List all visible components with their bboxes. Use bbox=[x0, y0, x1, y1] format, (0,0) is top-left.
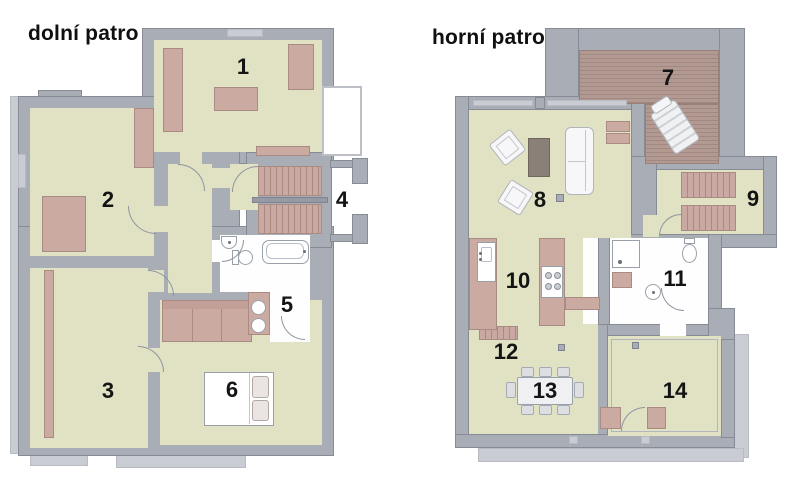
stove bbox=[541, 266, 563, 298]
sofa-cushion-divider bbox=[192, 309, 193, 341]
porch bbox=[116, 454, 246, 468]
shower-drain bbox=[618, 260, 622, 264]
wall-segment bbox=[631, 96, 645, 158]
bed-divider bbox=[249, 373, 250, 424]
sofa bbox=[565, 127, 594, 195]
bathtub-inner bbox=[266, 243, 304, 259]
shower bbox=[612, 240, 640, 268]
column bbox=[558, 344, 565, 351]
sideboard bbox=[606, 121, 630, 132]
wall-pillar bbox=[352, 214, 368, 244]
room-number: 14 bbox=[663, 378, 687, 404]
desk bbox=[42, 196, 86, 252]
room-number: 13 bbox=[533, 378, 557, 404]
room-number: 4 bbox=[336, 187, 348, 213]
corridor-floor bbox=[583, 238, 598, 324]
washbasin bbox=[645, 284, 661, 300]
room-number: 3 bbox=[102, 378, 114, 404]
plan-title-upper-floor: horní patro bbox=[432, 26, 545, 50]
dining-chair bbox=[521, 405, 534, 415]
wall-pillar bbox=[352, 158, 368, 184]
sink-basin bbox=[481, 247, 492, 262]
window bbox=[569, 436, 578, 444]
toilet bbox=[682, 244, 697, 263]
cabinet bbox=[600, 407, 621, 429]
pillow bbox=[252, 376, 269, 398]
staircase-lower-flight bbox=[681, 205, 736, 231]
sofa bbox=[162, 300, 252, 342]
door-opening bbox=[643, 215, 659, 237]
window-mullion bbox=[535, 97, 545, 109]
burner bbox=[545, 283, 552, 290]
sideboard bbox=[606, 133, 630, 144]
room-number: 7 bbox=[662, 65, 674, 91]
dining-chair bbox=[557, 405, 570, 415]
armchair-seat bbox=[504, 186, 527, 209]
wardrobe bbox=[134, 108, 154, 168]
bathtub bbox=[262, 240, 309, 264]
room-number: 10 bbox=[506, 268, 530, 294]
burner bbox=[554, 272, 561, 279]
room-number: 8 bbox=[534, 187, 546, 213]
window bbox=[227, 29, 263, 37]
room-number: 9 bbox=[747, 186, 759, 212]
wall-segment bbox=[598, 234, 610, 334]
sofa-backrest bbox=[163, 301, 251, 309]
dining-chair bbox=[574, 382, 584, 398]
porch bbox=[478, 448, 744, 462]
burner bbox=[554, 283, 561, 290]
washbasin bbox=[251, 300, 266, 315]
wardrobe bbox=[288, 44, 314, 90]
window bbox=[473, 100, 533, 106]
bathtub-drain bbox=[303, 250, 306, 253]
outer-shadow bbox=[733, 334, 749, 458]
window bbox=[18, 154, 26, 188]
cabinet-strip bbox=[44, 270, 54, 438]
dining-chair bbox=[506, 382, 516, 398]
wall-segment bbox=[455, 96, 469, 448]
wardrobe bbox=[163, 48, 183, 132]
dining-chair bbox=[557, 367, 570, 377]
terrace-deck bbox=[579, 50, 719, 104]
room-number: 12 bbox=[494, 339, 518, 365]
wall-segment bbox=[455, 434, 735, 448]
bath-cabinet bbox=[612, 272, 632, 288]
window bbox=[641, 436, 650, 444]
pillow bbox=[252, 400, 269, 421]
kitchen-sink-counter bbox=[477, 242, 496, 282]
wall-segment bbox=[719, 28, 745, 170]
dining-chair bbox=[521, 367, 534, 377]
faucet bbox=[479, 252, 482, 255]
basin-drain bbox=[652, 291, 655, 294]
balcony bbox=[322, 86, 362, 156]
armchair-seat bbox=[496, 136, 520, 160]
dining-chair bbox=[539, 367, 552, 377]
room-number: 1 bbox=[237, 54, 249, 80]
sofa-cushion-divider bbox=[221, 309, 222, 341]
plan-title-lower-floor: dolní patro bbox=[28, 22, 139, 46]
room-number: 11 bbox=[663, 266, 686, 292]
sofa-backrest-line bbox=[585, 130, 586, 191]
room-number: 6 bbox=[226, 377, 238, 403]
sofa-cushion-divider bbox=[568, 161, 585, 162]
shelf bbox=[256, 146, 310, 156]
staircase-lower-flight bbox=[258, 204, 322, 234]
room-number: 2 bbox=[102, 187, 114, 213]
staircase-upper-flight bbox=[258, 166, 322, 196]
half-wall-counter bbox=[565, 297, 600, 310]
burner bbox=[545, 272, 552, 279]
room-number: 5 bbox=[281, 292, 293, 318]
wall-segment bbox=[545, 28, 579, 106]
column bbox=[632, 342, 639, 349]
column bbox=[556, 194, 564, 202]
washbasin bbox=[251, 318, 266, 333]
faucet bbox=[479, 258, 482, 261]
dining-chair bbox=[539, 405, 552, 415]
stair-rail bbox=[252, 197, 328, 203]
door-opening bbox=[210, 168, 232, 188]
table bbox=[214, 87, 258, 111]
window bbox=[547, 100, 627, 106]
cabinet bbox=[647, 407, 666, 429]
door-opening bbox=[660, 324, 686, 336]
coffee-table bbox=[528, 138, 550, 177]
staircase-upper-flight bbox=[681, 172, 736, 198]
floorplan-canvas: dolní patro bbox=[0, 0, 800, 494]
